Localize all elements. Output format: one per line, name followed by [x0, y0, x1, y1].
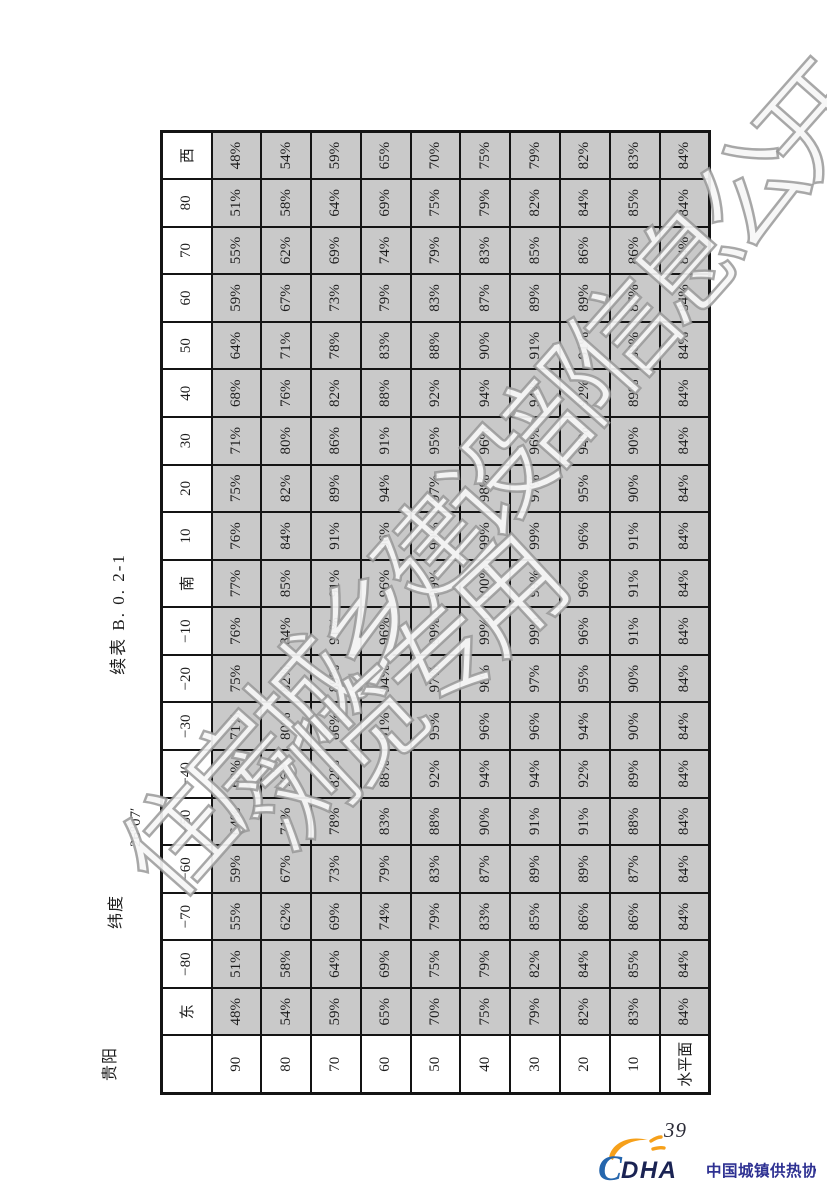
- value-cell: 90%: [610, 655, 660, 703]
- value-cell: 83%: [411, 845, 461, 893]
- value-cell: 98%: [460, 655, 510, 703]
- value-cell: 91%: [311, 560, 361, 608]
- corner-cell: [162, 1036, 212, 1094]
- table-row: 8054%58%62%67%71%76%80%82%84%85%84%82%80…: [261, 132, 311, 1094]
- value-cell: 99%: [460, 607, 510, 655]
- value-cell: 89%: [510, 274, 560, 322]
- value-cell: 71%: [261, 798, 311, 846]
- value-cell: 58%: [261, 940, 311, 988]
- value-cell: 64%: [212, 798, 262, 846]
- latitude-value: 26°07′: [128, 808, 145, 847]
- value-cell: 83%: [610, 132, 660, 180]
- value-cell: 64%: [212, 322, 262, 370]
- logo-acronym: DHA: [621, 1157, 678, 1184]
- value-cell: 74%: [361, 227, 411, 275]
- value-cell: 91%: [610, 560, 660, 608]
- orientation-header-cell: −80: [162, 940, 212, 988]
- value-cell: 92%: [560, 369, 610, 417]
- value-cell: 84%: [660, 655, 710, 703]
- table-title: 续表 B. 0. 2-1: [104, 133, 129, 1095]
- orientation-header-cell: 20: [162, 465, 212, 513]
- value-cell: 90%: [610, 702, 660, 750]
- value-cell: 90%: [610, 417, 660, 465]
- value-cell: 91%: [361, 417, 411, 465]
- value-cell: 88%: [610, 798, 660, 846]
- orientation-header-cell: 60: [162, 274, 212, 322]
- value-cell: 84%: [660, 560, 710, 608]
- value-cell: 85%: [510, 893, 560, 941]
- value-cell: 76%: [212, 512, 262, 560]
- value-cell: 96%: [361, 607, 411, 655]
- tilt-label-cell: 50: [411, 1036, 461, 1094]
- value-cell: 79%: [510, 988, 560, 1036]
- value-cell: 48%: [212, 132, 262, 180]
- value-cell: 84%: [660, 322, 710, 370]
- value-cell: 67%: [261, 274, 311, 322]
- value-cell: 100%: [460, 560, 510, 608]
- value-cell: 96%: [560, 512, 610, 560]
- value-cell: 99%: [411, 607, 461, 655]
- value-cell: 73%: [311, 274, 361, 322]
- value-cell: 95%: [411, 417, 461, 465]
- tilt-label-cell: 70: [311, 1036, 361, 1094]
- value-cell: 96%: [560, 607, 610, 655]
- value-cell: 88%: [361, 369, 411, 417]
- value-cell: 97%: [510, 465, 560, 513]
- value-cell: 85%: [610, 940, 660, 988]
- value-cell: 86%: [311, 417, 361, 465]
- value-cell: 89%: [610, 750, 660, 798]
- value-cell: 90%: [460, 322, 510, 370]
- value-cell: 86%: [560, 227, 610, 275]
- orientation-header-cell: 30: [162, 417, 212, 465]
- value-cell: 83%: [460, 893, 510, 941]
- tilt-label-cell: 90: [212, 1036, 262, 1094]
- value-cell: 82%: [311, 369, 361, 417]
- value-cell: 88%: [361, 750, 411, 798]
- value-cell: 75%: [212, 465, 262, 513]
- orientation-header-cell: −30: [162, 702, 212, 750]
- value-cell: 83%: [411, 274, 461, 322]
- logo-swoosh-dash-icon: [651, 1137, 661, 1141]
- value-cell: 59%: [212, 274, 262, 322]
- value-cell: 67%: [261, 845, 311, 893]
- value-cell: 84%: [660, 940, 710, 988]
- value-cell: 94%: [361, 465, 411, 513]
- value-cell: 55%: [212, 893, 262, 941]
- value-cell: 83%: [610, 988, 660, 1036]
- value-cell: 88%: [610, 322, 660, 370]
- value-cell: 91%: [361, 702, 411, 750]
- value-cell: 94%: [361, 655, 411, 703]
- value-cell: 79%: [460, 940, 510, 988]
- value-cell: 74%: [361, 893, 411, 941]
- value-cell: 97%: [510, 655, 560, 703]
- value-cell: 84%: [261, 607, 311, 655]
- value-cell: 94%: [510, 369, 560, 417]
- value-cell: 91%: [311, 512, 361, 560]
- value-cell: 75%: [460, 132, 510, 180]
- value-cell: 88%: [411, 322, 461, 370]
- table-row: 1083%85%86%87%88%89%90%90%91%91%91%90%90…: [610, 132, 660, 1094]
- value-cell: 84%: [660, 369, 710, 417]
- value-cell: 96%: [510, 702, 560, 750]
- value-cell: 59%: [311, 132, 361, 180]
- value-cell: 82%: [261, 655, 311, 703]
- value-cell: 79%: [510, 132, 560, 180]
- value-cell: 99%: [510, 512, 560, 560]
- value-cell: 82%: [560, 988, 610, 1036]
- value-cell: 96%: [460, 702, 510, 750]
- orientation-header-cell: −20: [162, 655, 212, 703]
- value-cell: 59%: [212, 845, 262, 893]
- value-cell: 89%: [510, 845, 560, 893]
- orientation-header-cell: −60: [162, 845, 212, 893]
- value-cell: 69%: [361, 940, 411, 988]
- value-cell: 90%: [460, 798, 510, 846]
- value-cell: 86%: [311, 702, 361, 750]
- tilt-label-cell: 20: [560, 1036, 610, 1094]
- value-cell: 89%: [311, 655, 361, 703]
- value-cell: 84%: [660, 227, 710, 275]
- value-cell: 84%: [660, 893, 710, 941]
- value-cell: 54%: [261, 132, 311, 180]
- value-cell: 82%: [510, 179, 560, 227]
- value-cell: 84%: [660, 465, 710, 513]
- value-cell: 82%: [510, 940, 560, 988]
- value-cell: 91%: [560, 798, 610, 846]
- value-cell: 73%: [311, 845, 361, 893]
- table-row: 9048%51%55%59%64%68%71%75%76%77%76%75%71…: [212, 132, 262, 1094]
- value-cell: 87%: [610, 845, 660, 893]
- value-cell: 55%: [212, 227, 262, 275]
- value-cell: 79%: [361, 274, 411, 322]
- value-cell: 75%: [212, 655, 262, 703]
- orientation-header-cell: 西: [162, 132, 212, 180]
- value-cell: 91%: [510, 322, 560, 370]
- cdha-logo: C DHA 中国城镇供热协会: [596, 1134, 816, 1186]
- value-cell: 79%: [411, 227, 461, 275]
- value-cell: 91%: [311, 607, 361, 655]
- tilt-label-cell: 60: [361, 1036, 411, 1094]
- logo-graphic: C DHA 中国城镇供热协会: [596, 1134, 816, 1186]
- value-cell: 84%: [560, 179, 610, 227]
- tilt-label-cell: 40: [460, 1036, 510, 1094]
- tilt-label-cell: 30: [510, 1036, 560, 1094]
- value-cell: 76%: [212, 607, 262, 655]
- value-cell: 87%: [610, 274, 660, 322]
- value-cell: 92%: [411, 369, 461, 417]
- orientation-header-cell: −10: [162, 607, 212, 655]
- value-cell: 94%: [510, 750, 560, 798]
- value-cell: 99%: [411, 560, 461, 608]
- value-cell: 83%: [460, 227, 510, 275]
- document-page: 贵阳 纬度 26°07′ 续表 B. 0. 2-1 东−80−70−60−50−…: [0, 0, 827, 1198]
- value-cell: 83%: [361, 322, 411, 370]
- value-cell: 64%: [311, 179, 361, 227]
- orientation-header-cell: −70: [162, 893, 212, 941]
- value-cell: 54%: [261, 988, 311, 1036]
- table-row: 6065%69%74%79%83%88%91%94%96%96%96%94%91…: [361, 132, 411, 1094]
- table-row: 3079%82%85%89%91%94%96%97%99%99%99%97%96…: [510, 132, 560, 1094]
- orientation-header-cell: −50: [162, 798, 212, 846]
- value-cell: 86%: [610, 893, 660, 941]
- value-cell: 75%: [411, 179, 461, 227]
- value-cell: 85%: [510, 227, 560, 275]
- value-cell: 84%: [660, 750, 710, 798]
- value-cell: 94%: [560, 702, 610, 750]
- value-cell: 88%: [411, 798, 461, 846]
- orientation-header-cell: 南: [162, 560, 212, 608]
- value-cell: 84%: [660, 179, 710, 227]
- value-cell: 65%: [361, 132, 411, 180]
- value-cell: 90%: [610, 465, 660, 513]
- value-cell: 82%: [261, 465, 311, 513]
- value-cell: 91%: [610, 607, 660, 655]
- value-cell: 76%: [261, 369, 311, 417]
- value-cell: 83%: [361, 798, 411, 846]
- logo-org-name: 中国城镇供热协会: [706, 1161, 816, 1180]
- orientation-header-cell: 10: [162, 512, 212, 560]
- value-cell: 79%: [411, 893, 461, 941]
- value-cell: 70%: [411, 988, 461, 1036]
- value-cell: 97%: [411, 465, 461, 513]
- value-cell: 99%: [510, 607, 560, 655]
- value-cell: 94%: [460, 750, 510, 798]
- value-cell: 76%: [261, 750, 311, 798]
- value-cell: 95%: [560, 655, 610, 703]
- value-cell: 85%: [261, 560, 311, 608]
- tilt-label-cell: 10: [610, 1036, 660, 1094]
- table-row: 5070%75%79%83%88%92%95%97%99%99%99%97%95…: [411, 132, 461, 1094]
- value-cell: 84%: [660, 512, 710, 560]
- value-cell: 95%: [560, 465, 610, 513]
- value-cell: 91%: [610, 512, 660, 560]
- value-cell: 85%: [610, 179, 660, 227]
- value-cell: 87%: [460, 845, 510, 893]
- value-cell: 95%: [411, 702, 461, 750]
- value-cell: 96%: [460, 417, 510, 465]
- value-cell: 71%: [261, 322, 311, 370]
- value-cell: 99%: [411, 512, 461, 560]
- table-row: 水平面84%84%84%84%84%84%84%84%84%84%84%84%8…: [660, 132, 710, 1094]
- orientation-header-cell: 80: [162, 179, 212, 227]
- value-cell: 84%: [660, 988, 710, 1036]
- value-cell: 71%: [212, 417, 262, 465]
- value-cell: 75%: [411, 940, 461, 988]
- value-cell: 48%: [212, 988, 262, 1036]
- radiation-percentage-table: 东−80−70−60−50−40−30−20−10南10203040506070…: [160, 130, 711, 1095]
- value-cell: 89%: [560, 274, 610, 322]
- logo-c-mark: C: [598, 1148, 623, 1186]
- value-cell: 86%: [610, 227, 660, 275]
- value-cell: 58%: [261, 179, 311, 227]
- value-cell: 96%: [361, 560, 411, 608]
- value-cell: 89%: [560, 845, 610, 893]
- value-cell: 92%: [560, 750, 610, 798]
- value-cell: 98%: [460, 465, 510, 513]
- value-cell: 89%: [610, 369, 660, 417]
- rotated-table-region: 贵阳 纬度 26°07′ 续表 B. 0. 2-1 东−80−70−60−50−…: [96, 133, 716, 1095]
- value-cell: 62%: [261, 227, 311, 275]
- value-cell: 84%: [660, 132, 710, 180]
- value-cell: 79%: [460, 179, 510, 227]
- value-cell: 96%: [510, 417, 560, 465]
- value-cell: 92%: [411, 750, 461, 798]
- value-cell: 75%: [460, 988, 510, 1036]
- value-cell: 79%: [361, 845, 411, 893]
- orientation-header-cell: −40: [162, 750, 212, 798]
- value-cell: 62%: [261, 893, 311, 941]
- value-cell: 84%: [660, 798, 710, 846]
- value-cell: 97%: [411, 655, 461, 703]
- value-cell: 64%: [311, 940, 361, 988]
- value-cell: 82%: [311, 750, 361, 798]
- value-cell: 69%: [311, 227, 361, 275]
- value-cell: 84%: [660, 702, 710, 750]
- value-cell: 84%: [660, 417, 710, 465]
- value-cell: 69%: [311, 893, 361, 941]
- orientation-header-cell: 50: [162, 322, 212, 370]
- value-cell: 96%: [361, 512, 411, 560]
- value-cell: 65%: [361, 988, 411, 1036]
- logo-swoosh-dash-icon: [653, 1148, 664, 1149]
- value-cell: 91%: [560, 322, 610, 370]
- table-row: 7059%64%69%73%78%82%86%89%91%91%91%89%86…: [311, 132, 361, 1094]
- value-cell: 94%: [460, 369, 510, 417]
- value-cell: 68%: [212, 369, 262, 417]
- value-cell: 84%: [560, 940, 610, 988]
- value-cell: 84%: [660, 845, 710, 893]
- value-cell: 84%: [660, 274, 710, 322]
- tilt-label-cell: 80: [261, 1036, 311, 1094]
- value-cell: 59%: [311, 988, 361, 1036]
- table-row: 2082%84%86%89%91%92%94%95%96%96%96%95%94…: [560, 132, 610, 1094]
- value-cell: 78%: [311, 322, 361, 370]
- orientation-header-cell: 40: [162, 369, 212, 417]
- value-cell: 94%: [560, 417, 610, 465]
- value-cell: 70%: [411, 132, 461, 180]
- value-cell: 99%: [460, 512, 510, 560]
- value-cell: 99%: [510, 560, 560, 608]
- orientation-header-cell: 东: [162, 988, 212, 1036]
- value-cell: 86%: [560, 893, 610, 941]
- value-cell: 69%: [361, 179, 411, 227]
- value-cell: 80%: [261, 702, 311, 750]
- value-cell: 89%: [311, 465, 361, 513]
- table-row: 4075%79%83%87%90%94%96%98%99%100%99%98%9…: [460, 132, 510, 1094]
- value-cell: 84%: [660, 607, 710, 655]
- value-cell: 91%: [510, 798, 560, 846]
- value-cell: 51%: [212, 179, 262, 227]
- value-cell: 77%: [212, 560, 262, 608]
- value-cell: 80%: [261, 417, 311, 465]
- value-cell: 96%: [560, 560, 610, 608]
- value-cell: 68%: [212, 750, 262, 798]
- orientation-header-cell: 70: [162, 227, 212, 275]
- tilt-label-cell: 水平面: [660, 1036, 710, 1094]
- value-cell: 51%: [212, 940, 262, 988]
- value-cell: 82%: [560, 132, 610, 180]
- value-cell: 78%: [311, 798, 361, 846]
- value-cell: 71%: [212, 702, 262, 750]
- value-cell: 84%: [261, 512, 311, 560]
- value-cell: 87%: [460, 274, 510, 322]
